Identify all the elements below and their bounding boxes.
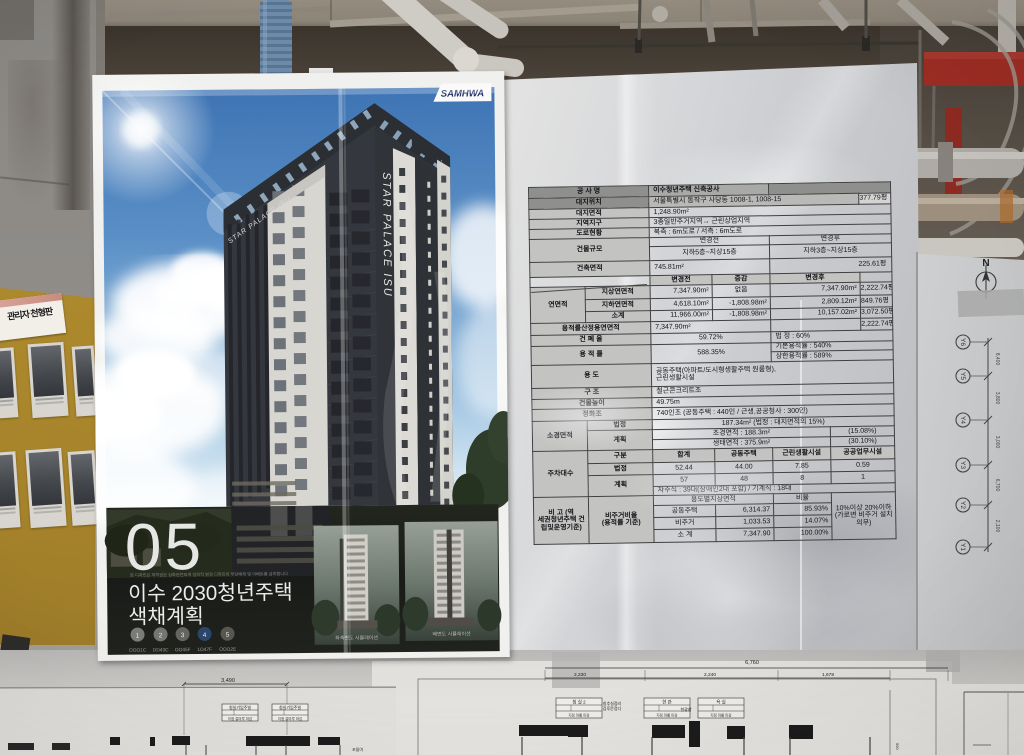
- svg-text:침실기임주빌: 침실기임주빌: [279, 704, 301, 710]
- svg-text:3,800: 3,800: [994, 392, 1000, 405]
- svg-text:Y2: Y2: [959, 501, 966, 509]
- svg-text:Y1: Y1: [959, 543, 966, 551]
- svg-text:지정 마룰 마감: 지정 마룰 마감: [710, 713, 732, 718]
- svg-text:지정 걸마루 마감: 지정 걸마루 마감: [228, 716, 253, 721]
- svg-text:현 관: 현 관: [662, 699, 672, 705]
- svg-text:DD43C: DD43C: [153, 647, 169, 653]
- svg-text:욕 실: 욕 실: [716, 699, 726, 706]
- svg-text:5: 5: [226, 632, 230, 639]
- svg-text:천광창: 천광창: [680, 706, 691, 712]
- svg-text:2,230: 2,230: [574, 672, 586, 678]
- svg-text:590: 590: [895, 743, 900, 750]
- svg-text:지정 마룰 마감: 지정 마룰 마감: [656, 713, 678, 718]
- svg-text:8,400: 8,400: [994, 353, 1000, 366]
- svg-text:1: 1: [136, 633, 140, 640]
- svg-text:6,700: 6,700: [994, 479, 1000, 492]
- svg-text:Y6: Y6: [959, 338, 966, 346]
- svg-text:Y5: Y5: [959, 372, 966, 380]
- svg-text:배면도 시뮬레이션: 배면도 시뮬레이션: [432, 630, 471, 637]
- svg-text:포될여: 포될여: [352, 746, 363, 752]
- svg-text:침실기임주빌: 침실기임주빌: [229, 704, 251, 710]
- svg-text:색채계획: 색채계획: [128, 605, 204, 629]
- svg-text:2,100: 2,100: [994, 520, 1000, 533]
- svg-text:3,490: 3,490: [221, 678, 235, 684]
- svg-text:1,678: 1,678: [822, 672, 834, 678]
- svg-text:이수 2030청년주택: 이수 2030청년주택: [128, 581, 293, 606]
- svg-text:OO45F: OO45F: [175, 647, 191, 653]
- svg-text:4: 4: [203, 632, 207, 639]
- svg-text:2: 2: [159, 632, 163, 639]
- svg-text:겁후문접디: 겁후문접디: [603, 705, 622, 711]
- svg-text:Y4: Y4: [959, 416, 966, 424]
- svg-text:지정 걸마루 마감: 지정 걸마루 마감: [278, 716, 303, 721]
- svg-text:6,760: 6,760: [745, 660, 759, 666]
- svg-text:좌측면도 시뮬레이션: 좌측면도 시뮬레이션: [335, 634, 378, 641]
- svg-text:Y3: Y3: [959, 461, 966, 469]
- svg-text:3,000: 3,000: [994, 436, 1000, 449]
- svg-text:2,240: 2,240: [704, 672, 716, 678]
- svg-text:STAR PALACE ISU: STAR PALACE ISU: [380, 172, 393, 298]
- svg-text:침 실 2: 침 실 2: [572, 699, 586, 705]
- svg-text:OOO1C: OOO1C: [129, 647, 147, 653]
- svg-text:지정 마룰 마감: 지정 마룰 마감: [568, 713, 590, 718]
- svg-text:OOO2E: OOO2E: [219, 647, 236, 653]
- svg-text:1O47F: 1O47F: [197, 647, 212, 653]
- svg-text:3: 3: [181, 632, 185, 639]
